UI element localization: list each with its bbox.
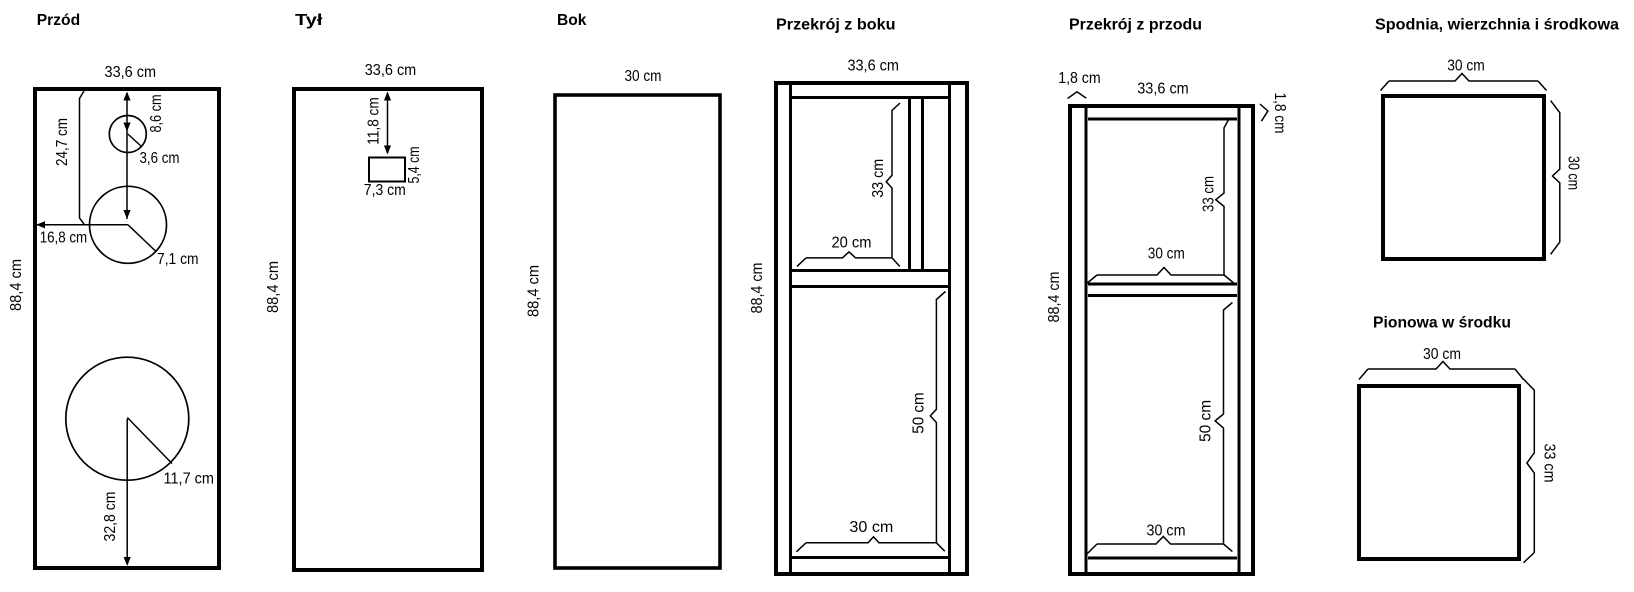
svg-text:33,6 cm: 33,6 cm bbox=[365, 62, 417, 79]
svg-text:1,8 cm: 1,8 cm bbox=[1271, 93, 1288, 134]
svg-text:33 cm: 33 cm bbox=[870, 159, 887, 198]
svg-text:11,7 cm: 11,7 cm bbox=[164, 471, 215, 488]
svg-text:33,6 cm: 33,6 cm bbox=[105, 64, 157, 81]
svg-text:88,4 cm: 88,4 cm bbox=[1046, 272, 1063, 323]
svg-text:30 cm: 30 cm bbox=[1447, 58, 1485, 75]
svg-text:1,8 cm: 1,8 cm bbox=[1058, 70, 1101, 87]
svg-text:30 cm: 30 cm bbox=[1148, 246, 1185, 263]
svg-text:30 cm: 30 cm bbox=[625, 68, 662, 85]
svg-text:Pionowa w środku: Pionowa w środku bbox=[1373, 315, 1511, 332]
svg-text:7,3 cm: 7,3 cm bbox=[364, 182, 406, 199]
svg-text:33,6 cm: 33,6 cm bbox=[847, 58, 899, 75]
svg-text:88,4 cm: 88,4 cm bbox=[526, 265, 543, 317]
svg-text:88,4 cm: 88,4 cm bbox=[265, 261, 282, 313]
svg-text:88,4 cm: 88,4 cm bbox=[8, 259, 25, 311]
svg-text:24,7 cm: 24,7 cm bbox=[54, 118, 71, 166]
svg-text:16,8 cm: 16,8 cm bbox=[40, 230, 87, 247]
svg-text:30 cm: 30 cm bbox=[849, 519, 893, 536]
svg-text:33,6 cm: 33,6 cm bbox=[1137, 81, 1189, 98]
svg-text:11,8 cm: 11,8 cm bbox=[366, 97, 383, 145]
svg-text:33 cm: 33 cm bbox=[1541, 444, 1558, 483]
svg-text:Tył: Tył bbox=[295, 12, 323, 29]
svg-text:20 cm: 20 cm bbox=[832, 235, 872, 252]
svg-text:5,4 cm: 5,4 cm bbox=[406, 147, 423, 184]
svg-text:7,1 cm: 7,1 cm bbox=[157, 251, 199, 268]
svg-text:30 cm: 30 cm bbox=[1565, 156, 1582, 190]
svg-text:Przekrój z boku: Przekrój z boku bbox=[776, 17, 896, 34]
svg-text:Przód: Przód bbox=[37, 12, 80, 29]
svg-text:88,4 cm: 88,4 cm bbox=[749, 263, 766, 314]
svg-text:8,6 cm: 8,6 cm bbox=[148, 95, 165, 133]
svg-text:50 cm: 50 cm bbox=[911, 392, 928, 434]
svg-text:Spodnia, wierzchnia i środkowa: Spodnia, wierzchnia i środkowa bbox=[1375, 17, 1619, 34]
svg-text:32,8 cm: 32,8 cm bbox=[102, 492, 119, 542]
svg-text:33 cm: 33 cm bbox=[1201, 176, 1218, 212]
svg-text:30 cm: 30 cm bbox=[1147, 523, 1186, 540]
svg-text:3,6 cm: 3,6 cm bbox=[140, 150, 180, 167]
svg-text:50 cm: 50 cm bbox=[1198, 400, 1215, 442]
svg-text:30 cm: 30 cm bbox=[1423, 346, 1461, 363]
svg-text:Bok: Bok bbox=[557, 12, 587, 29]
svg-text:Przekrój z przodu: Przekrój z przodu bbox=[1069, 17, 1202, 34]
